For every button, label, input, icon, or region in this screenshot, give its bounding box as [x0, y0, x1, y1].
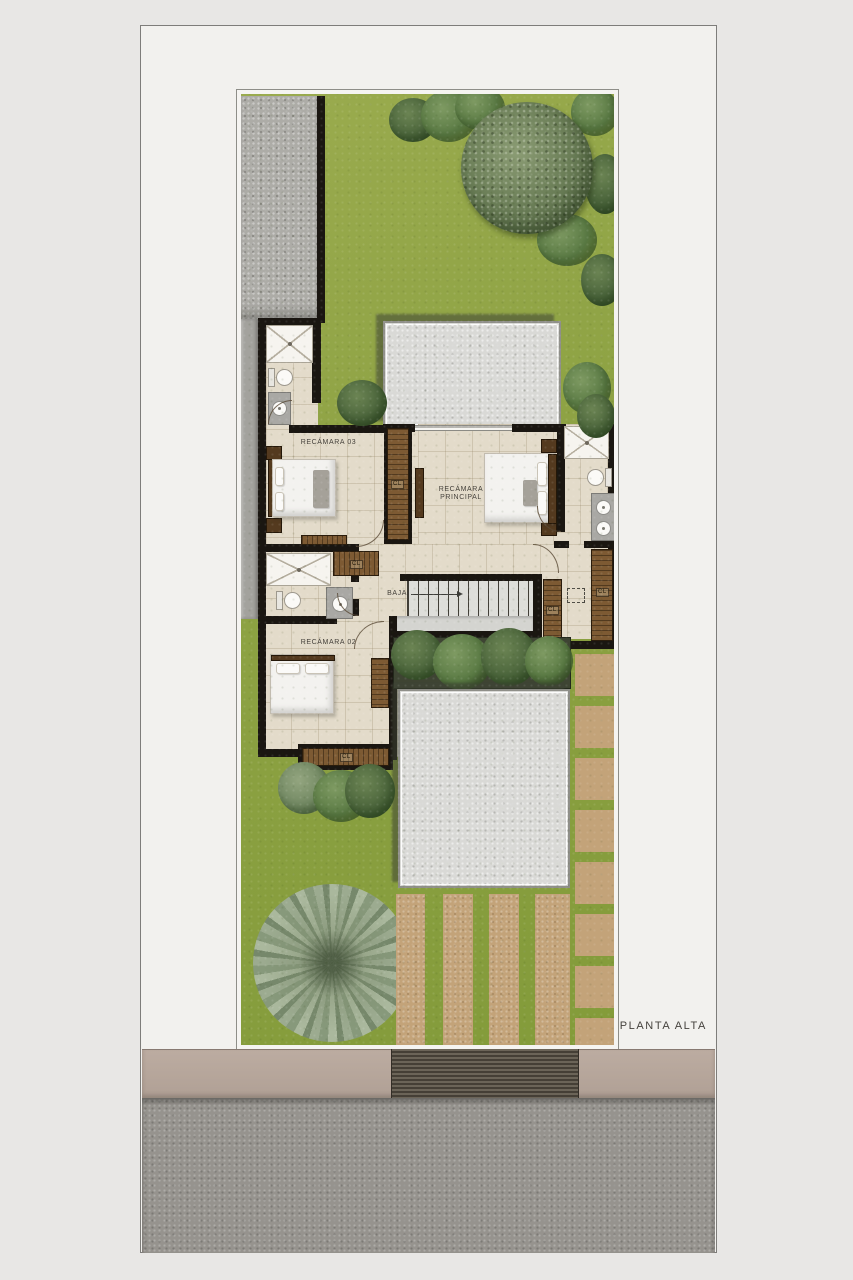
- planter-plant: [525, 636, 573, 686]
- wall: [312, 323, 321, 403]
- palm-tree: [253, 884, 411, 1042]
- shower-bathroom3: [266, 325, 313, 363]
- street: [142, 1098, 715, 1253]
- room-label-bedroom2: RECÁMARA 02: [271, 639, 386, 646]
- closet-label: CL: [596, 588, 609, 597]
- side-passage-roof: [241, 319, 259, 619]
- dresser-bedroom3: [301, 535, 347, 545]
- driveway-stripe: [396, 894, 425, 1045]
- closet-label: CL: [546, 606, 559, 615]
- garden-bush: [345, 764, 395, 818]
- bed-pillow: [275, 492, 284, 511]
- stairs-down-arrow: [411, 594, 457, 595]
- nightstand: [266, 518, 282, 533]
- room-label-bedroom3: RECÁMARA 03: [271, 439, 386, 446]
- bed-pillow: [537, 462, 547, 486]
- toilet-master: [587, 466, 613, 490]
- wall: [258, 544, 266, 757]
- driveway-stripe: [489, 894, 519, 1045]
- stairs-down-label: BAJA: [377, 590, 407, 597]
- wall: [289, 425, 389, 433]
- garden-plant: [577, 394, 614, 438]
- bed-throw: [523, 480, 537, 506]
- bed-pillow: [275, 467, 284, 486]
- stairs-treads: [407, 581, 533, 616]
- nightstand: [266, 446, 282, 460]
- roof-skylight-lower: [398, 689, 570, 888]
- bed-bedroom2: [270, 654, 334, 714]
- shrub-cluster: [581, 254, 614, 306]
- site-plan-frame: CL CL: [236, 89, 619, 1049]
- wall: [554, 541, 569, 548]
- courtyard-plant: [337, 380, 387, 426]
- bed-throw: [313, 470, 329, 508]
- driveway-stripe: [443, 894, 473, 1045]
- shower-bathroom2: [266, 553, 331, 586]
- roof-skylight-upper: [383, 321, 561, 428]
- wall: [400, 574, 535, 581]
- toilet-bathroom3: [268, 366, 294, 389]
- plan-title: PLANTA ALTA: [581, 1020, 707, 1032]
- headboard: [271, 655, 335, 661]
- driveway-apron: [391, 1049, 579, 1098]
- vanity-master: [591, 493, 614, 541]
- plan-sheet: CL CL: [140, 25, 717, 1253]
- bed-pillow: [276, 663, 300, 674]
- window-master: [415, 425, 512, 431]
- bed-bedroom3: [272, 459, 336, 517]
- closet-label: CL: [391, 480, 404, 489]
- stepping-stones: [575, 654, 614, 1045]
- closet-label: CL: [350, 560, 363, 569]
- wall: [584, 541, 610, 548]
- bed-pillow: [305, 663, 329, 674]
- room-label-master-line2: PRINCIPAL: [411, 494, 511, 502]
- toilet-bathroom2: [276, 589, 306, 613]
- neighbor-paving: [241, 96, 317, 319]
- closet-label: CL: [340, 753, 353, 762]
- tree-canopy: [461, 102, 593, 234]
- site-plan: CL CL: [241, 94, 614, 1045]
- dashed-marker: [567, 588, 585, 603]
- page-background: CL CL: [0, 0, 853, 1280]
- room-label-master: RECÁMARA PRINCIPAL: [411, 486, 511, 502]
- driveway-stripe: [535, 894, 570, 1045]
- nightstand: [541, 439, 557, 453]
- stairs-down-arrowhead: [457, 591, 463, 597]
- wall: [258, 318, 266, 552]
- room-label-master-line1: RECÁMARA: [411, 486, 511, 494]
- wall: [317, 96, 325, 323]
- desk-bedroom2: [371, 658, 389, 708]
